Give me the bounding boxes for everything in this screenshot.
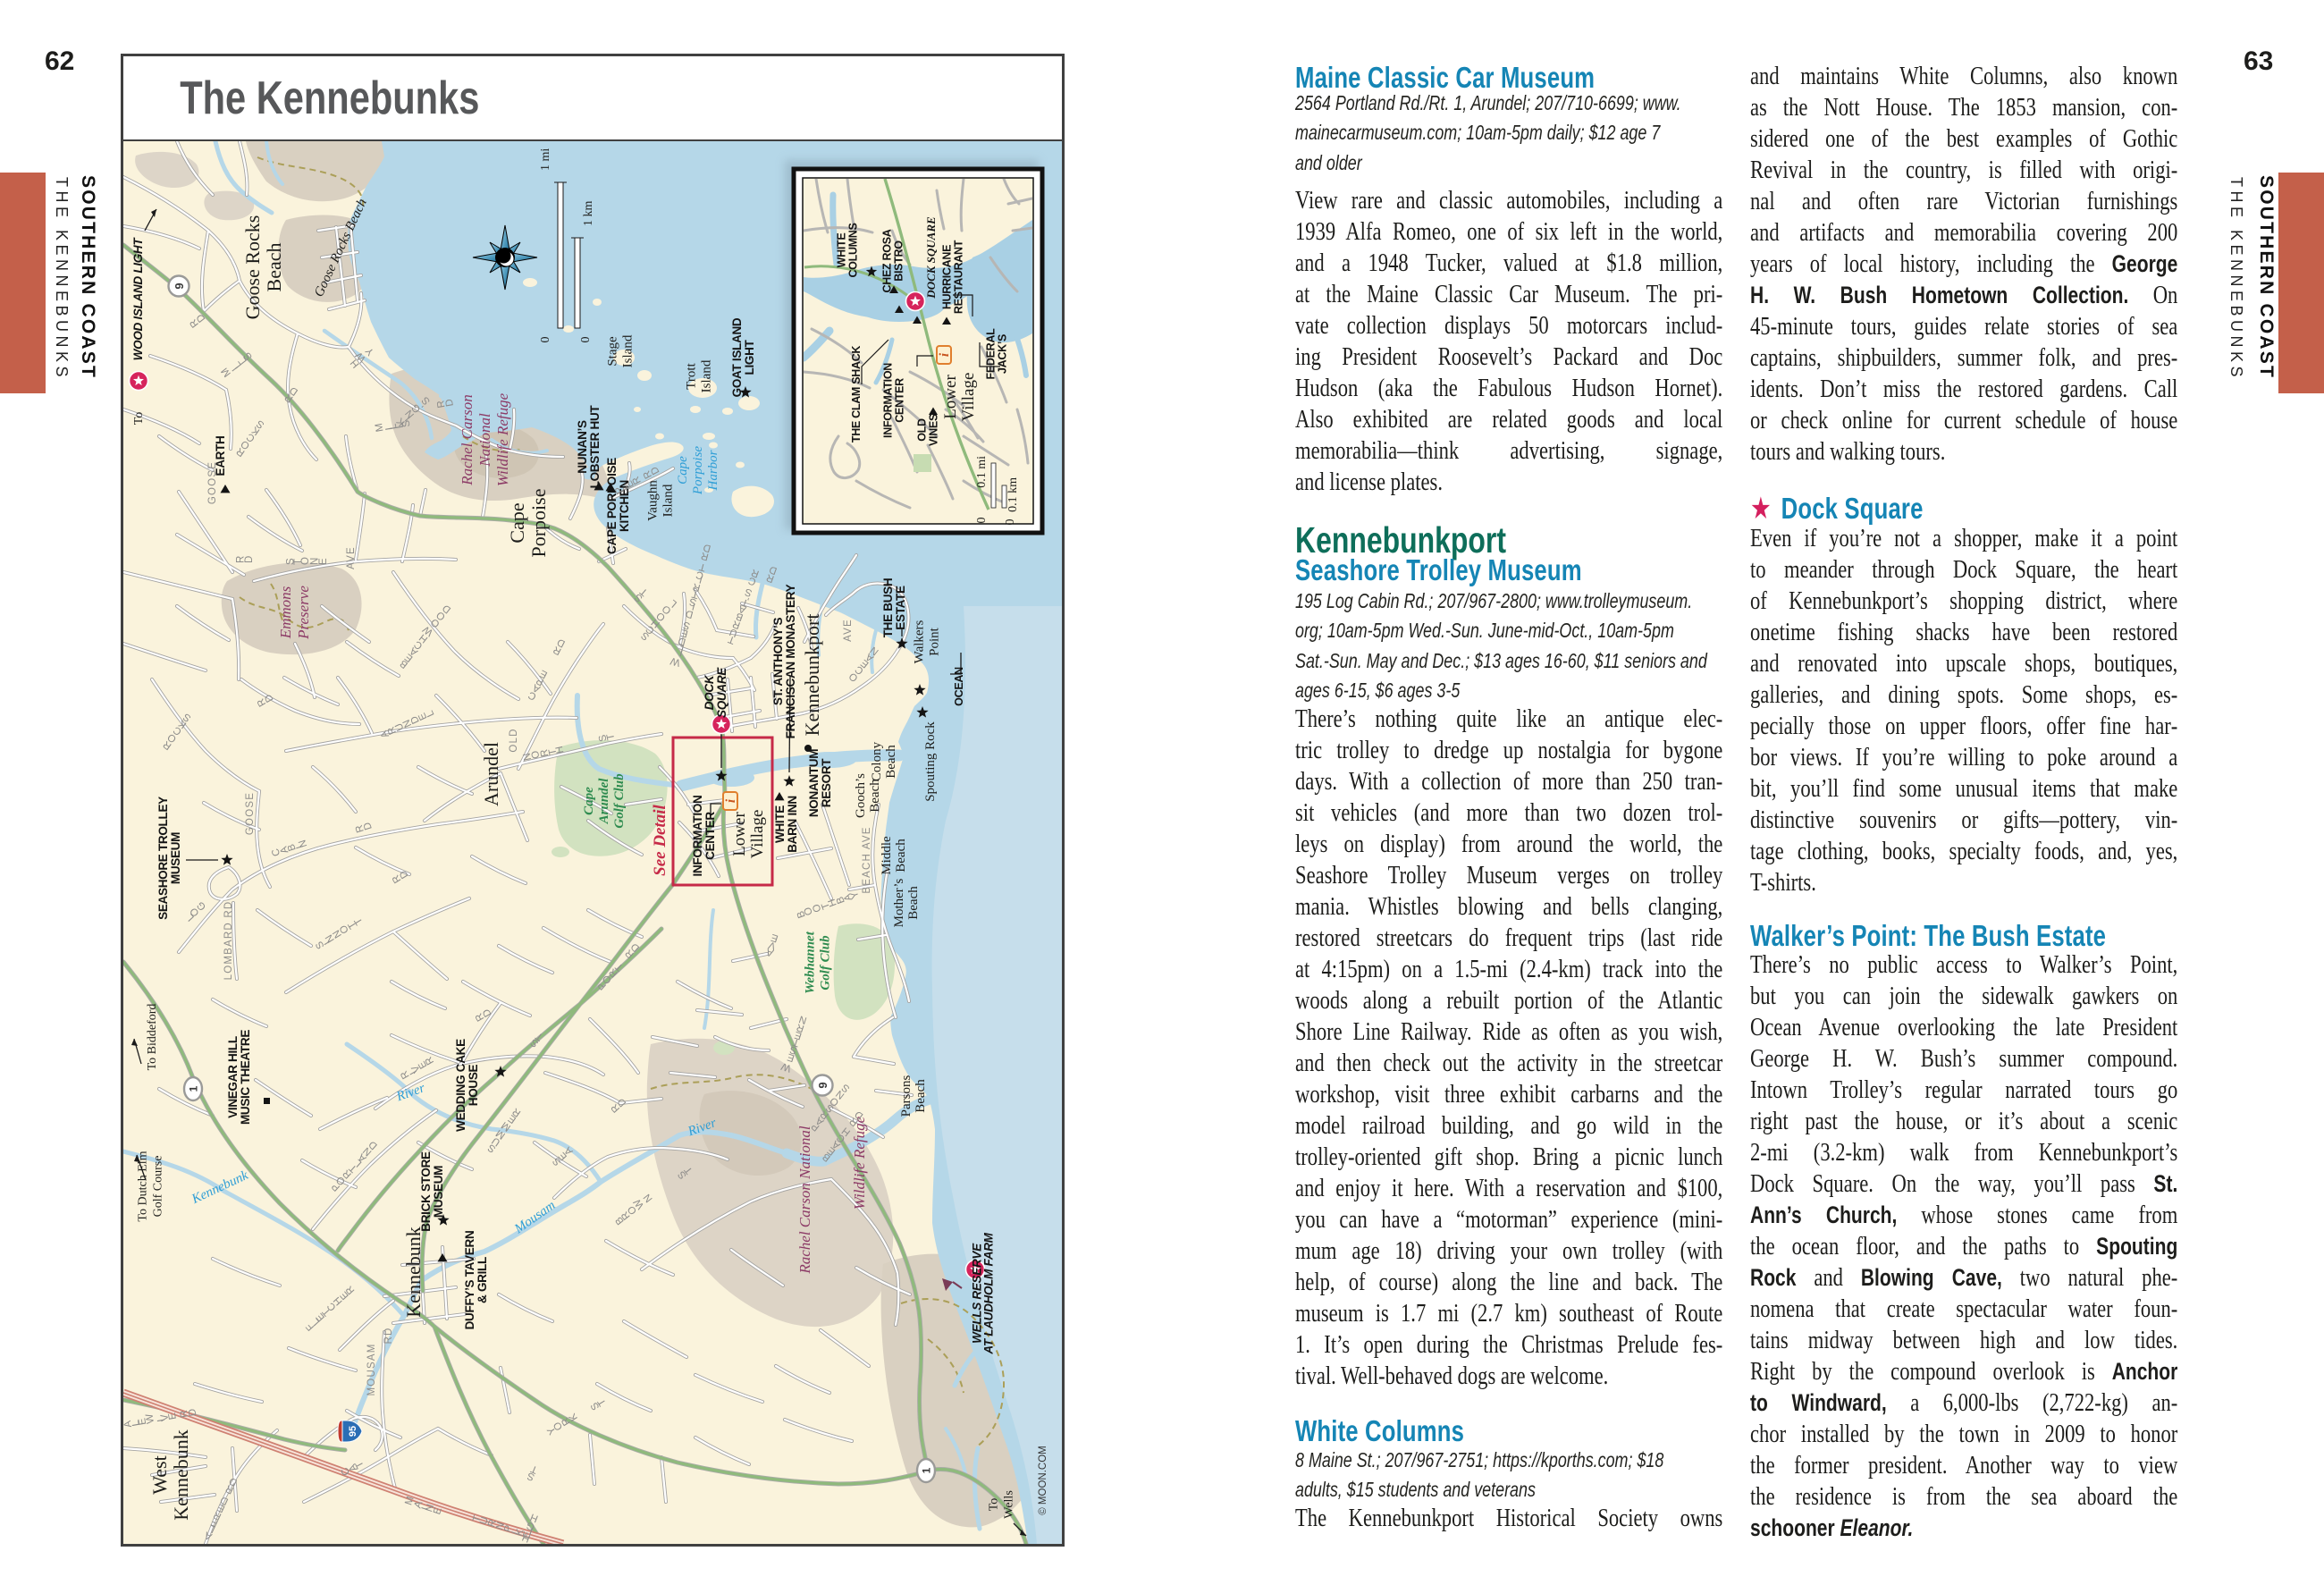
svg-text:WOOD ISLAND LIGHT: WOOD ISLAND LIGHT (131, 237, 145, 361)
svg-text:0: 0 (539, 337, 552, 343)
svg-text:HURRICANERESTAURANT: HURRICANERESTAURANT (941, 240, 965, 314)
svg-text:OLDVINES: OLDVINES (916, 414, 940, 446)
svg-text:GOOSE: GOOSE (207, 461, 218, 504)
svg-text:THE BUSHESTATE: THE BUSHESTATE (881, 578, 907, 638)
svg-text:Rachel Carson National: Rachel Carson National (796, 1126, 813, 1275)
svg-text:NONANTUMRESORT: NONANTUMRESORT (807, 749, 833, 817)
svg-text:RD: RD (383, 1327, 394, 1344)
svg-text:FEDERALJACK’S: FEDERALJACK’S (985, 328, 1009, 380)
svg-text:0: 0 (1004, 519, 1017, 526)
svg-text:StageIsland: StageIsland (606, 334, 636, 367)
svg-text:9: 9 (816, 1082, 829, 1088)
svg-text:RD: RD (235, 554, 255, 563)
svg-text:AVE: AVE (843, 619, 854, 642)
svg-text:VaughnIsland: VaughnIsland (646, 480, 676, 521)
svg-text:GOOSE: GOOSE (245, 792, 256, 835)
svg-text:OLD: OLD (509, 728, 519, 752)
svg-text:LowerVillage: LowerVillage (730, 810, 767, 859)
svg-text:THE CLAM SHACK: THE CLAM SHACK (850, 346, 863, 443)
svg-text:LowerVillage: LowerVillage (941, 373, 978, 422)
svg-text:Kennebunk: Kennebunk (402, 1227, 425, 1317)
svg-text:To: To (132, 412, 146, 426)
svg-text:Gooch’sBeach: Gooch’sBeach (854, 773, 882, 818)
svg-text:STONE: STONE (285, 556, 329, 565)
svg-text:9: 9 (173, 282, 186, 289)
svg-text:Arundel: Arundel (480, 742, 502, 806)
svg-text:TrottIsland: TrottIsland (685, 359, 714, 392)
svg-text:OCEAN: OCEAN (953, 667, 965, 706)
svg-text:AVE: AVE (346, 546, 357, 569)
svg-text:MiddleBeach: MiddleBeach (880, 836, 908, 875)
svg-text:0: 0 (975, 518, 989, 524)
svg-text:EmmonsPreserve: EmmonsPreserve (277, 586, 312, 640)
svg-text:ColonyBeach: ColonyBeach (870, 741, 898, 781)
svg-text:WebhannetGolf Club: WebhannetGolf Club (804, 931, 833, 994)
svg-text:BEACH AVE: BEACH AVE (862, 826, 872, 893)
svg-text:ParsonsBeach: ParsonsBeach (899, 1075, 928, 1117)
svg-text:0.1 mi: 0.1 mi (975, 456, 989, 488)
svg-text:© MOON.COM: © MOON.COM (1038, 1446, 1048, 1514)
svg-text:1 km: 1 km (582, 201, 595, 227)
svg-text:Spouting Rock: Spouting Rock (923, 721, 938, 802)
svg-text:1: 1 (188, 1085, 200, 1092)
svg-text:Wildlife Refuge: Wildlife Refuge (851, 1116, 868, 1210)
svg-text:1: 1 (921, 1467, 933, 1473)
svg-text:LOMBARD RD: LOMBARD RD (223, 901, 234, 981)
svg-text:Kennebunkport: Kennebunkport (801, 614, 823, 737)
svg-text:VINEGAR HILLMUSIC THEATRE: VINEGAR HILLMUSIC THEATRE (226, 1030, 252, 1125)
svg-text:0.1 km: 0.1 km (1006, 477, 1020, 512)
svg-text:See Detail: See Detail (651, 804, 669, 875)
svg-text:To Biddeford: To Biddeford (146, 1004, 159, 1071)
svg-text:DOCK SQUARE: DOCK SQUARE (924, 216, 938, 299)
svg-text:0: 0 (579, 337, 593, 343)
svg-text:MOUSAM: MOUSAM (366, 1344, 377, 1396)
svg-text:95: 95 (348, 1426, 358, 1437)
svg-text:WELLS RESERVEAT LAUDHOLM FARM: WELLS RESERVEAT LAUDHOLM FARM (971, 1232, 996, 1354)
svg-text:1 mi: 1 mi (539, 148, 552, 171)
